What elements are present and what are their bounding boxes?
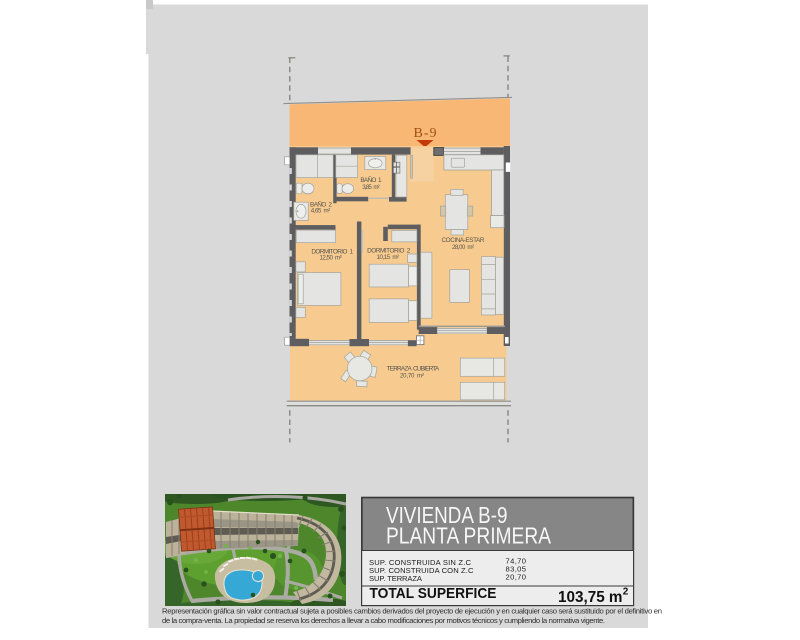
svg-text:4,65 m²: 4,65 m² [311, 208, 331, 215]
svg-text:SUP. TERRAZA: SUP. TERRAZA [369, 574, 423, 583]
svg-text:28,00 m²: 28,00 m² [452, 244, 474, 251]
svg-text:3,85 m²: 3,85 m² [362, 184, 379, 191]
svg-text:10,15 m²: 10,15 m² [377, 254, 400, 261]
svg-text:Representación gráfica sin val: Representación gráfica sin valor contrac… [162, 606, 662, 615]
svg-text:20,70 m²: 20,70 m² [400, 372, 424, 379]
svg-text:B-9: B-9 [414, 126, 438, 141]
svg-text:TOTAL SUPERFICE: TOTAL SUPERFICE [370, 586, 497, 602]
svg-text:12,50 m²: 12,50 m² [319, 255, 341, 262]
svg-text:BAÑO 1: BAÑO 1 [360, 175, 382, 184]
svg-text:de la compra-venta. La propied: de la compra-venta. La propiedad se rese… [162, 616, 605, 625]
svg-text:103,75 m: 103,75 m [558, 589, 623, 606]
svg-text:2: 2 [623, 587, 629, 598]
svg-text:PLANTA PRIMERA: PLANTA PRIMERA [386, 523, 552, 549]
svg-text:20,70: 20,70 [506, 572, 527, 581]
